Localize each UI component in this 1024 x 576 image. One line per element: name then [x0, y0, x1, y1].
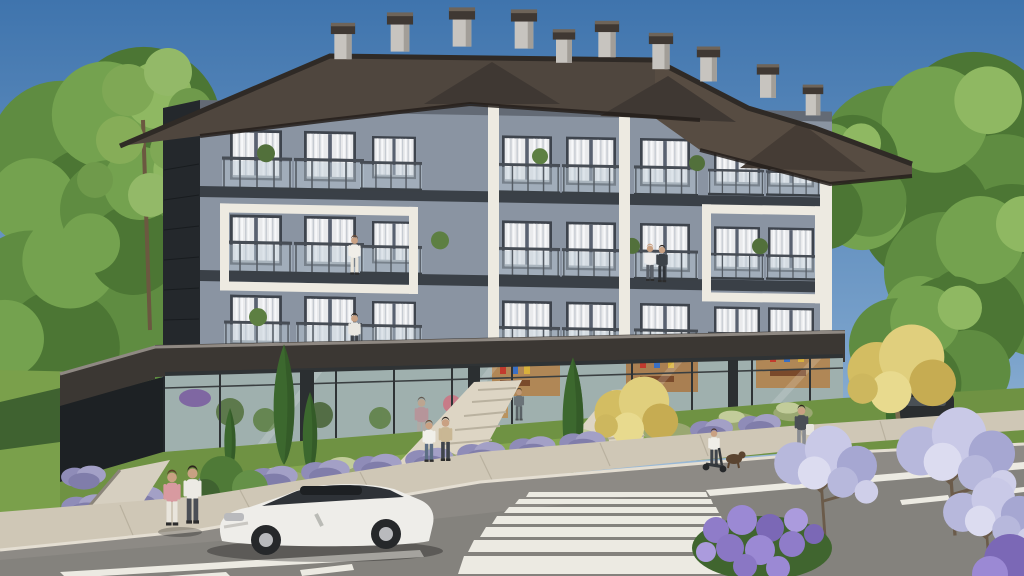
car-headlight — [224, 513, 244, 521]
planter-flowers-purple — [179, 389, 211, 407]
car-sunroof — [300, 486, 362, 495]
scene-canvas — [0, 0, 1024, 576]
architectural-rendering-scene — [0, 0, 1024, 576]
storefront-pillar-3 — [728, 360, 738, 409]
